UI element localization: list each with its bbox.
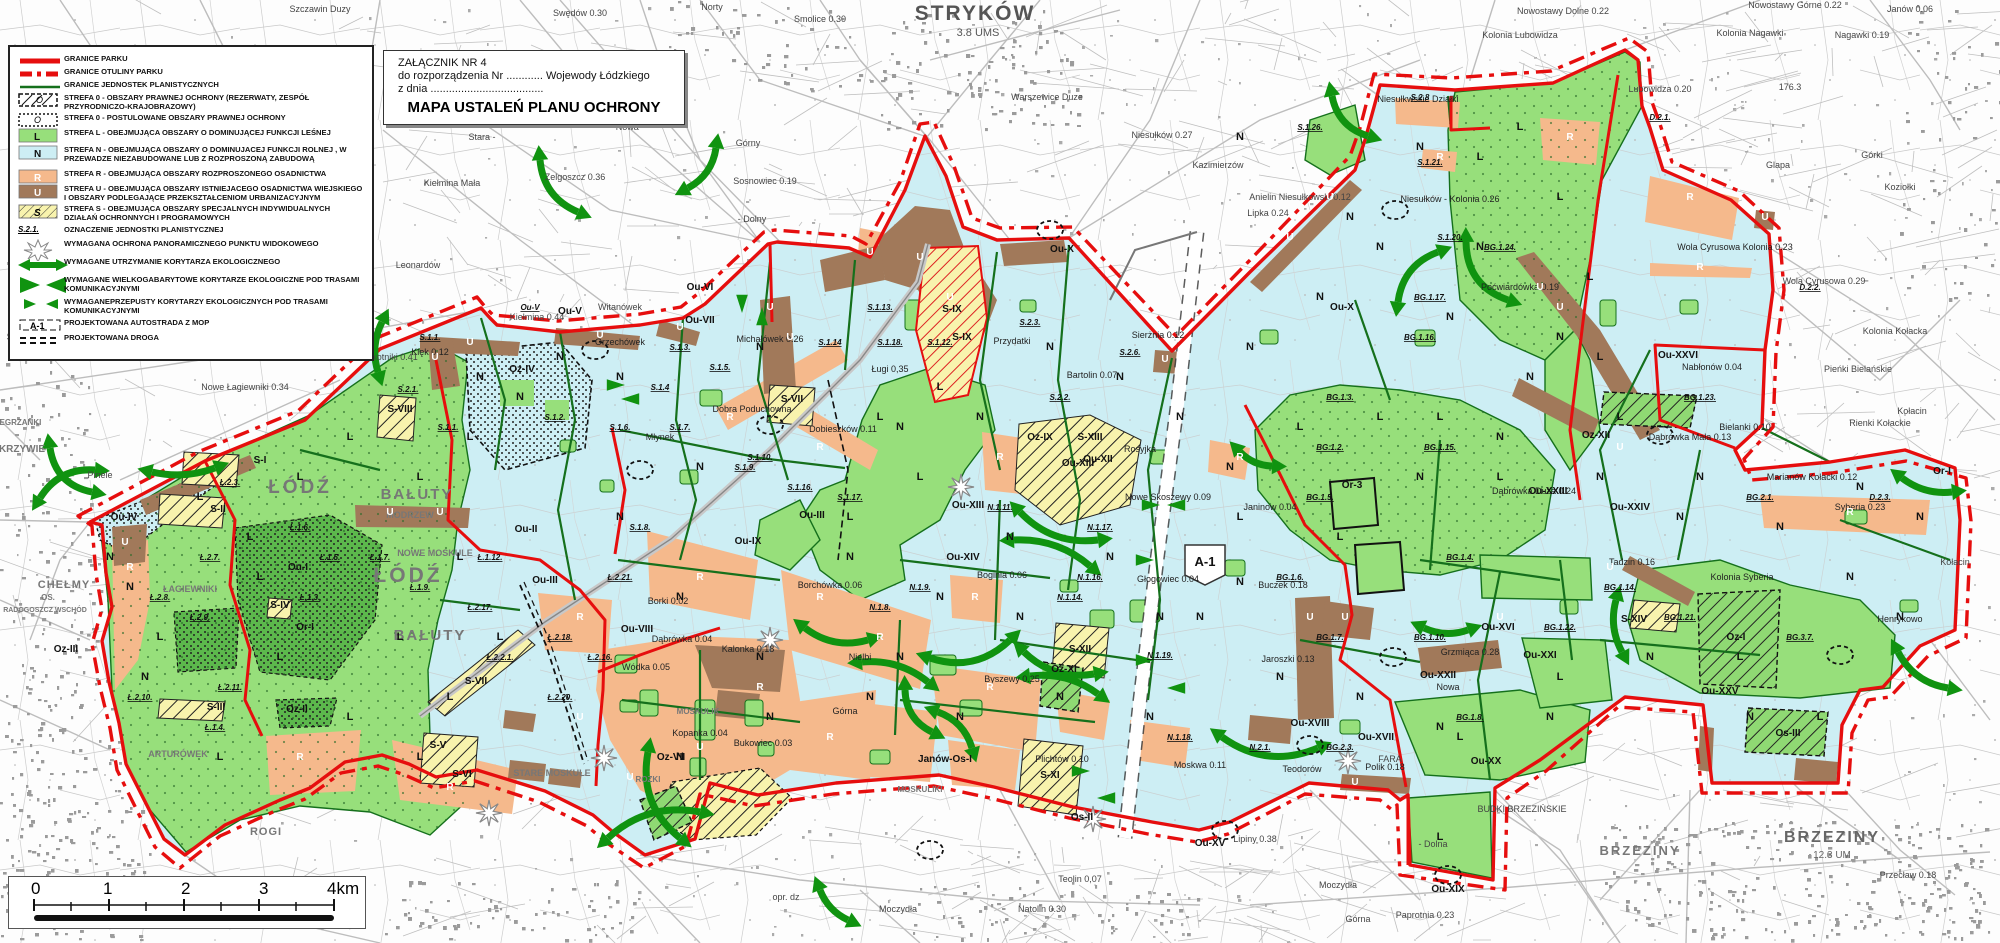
svg-text:- Dolny: - Dolny xyxy=(738,214,767,224)
svg-text:Ou-VIII: Ou-VIII xyxy=(621,624,653,635)
svg-text:N: N xyxy=(1236,131,1244,143)
svg-text:S-V: S-V xyxy=(430,740,447,751)
svg-text:S.1.20.: S.1.20. xyxy=(1437,233,1462,242)
svg-text:Ou-X: Ou-X xyxy=(1330,302,1354,313)
svg-text:BAŁUTY: BAŁUTY xyxy=(381,486,454,503)
svg-text:N.1.8.: N.1.8. xyxy=(869,603,890,612)
svg-text:S.2.6.: S.2.6. xyxy=(1120,348,1141,357)
svg-text:Ou-IV: Ou-IV xyxy=(111,512,138,523)
svg-text:BG.3.7.: BG.3.7. xyxy=(1786,633,1814,642)
svg-text:N: N xyxy=(1226,461,1234,473)
svg-text:Os-III: Os-III xyxy=(1775,728,1800,739)
svg-text:S-VIII: S-VIII xyxy=(387,404,412,415)
svg-text:L: L xyxy=(1477,151,1484,163)
svg-text:U: U xyxy=(34,188,41,199)
svg-text:12.3 UM: 12.3 UM xyxy=(1813,850,1851,861)
svg-text:Nowostawy Dolne 0.22: Nowostawy Dolne 0.22 xyxy=(1517,6,1609,16)
svg-text:Zelgoszcz 0.36: Zelgoszcz 0.36 xyxy=(545,172,606,182)
svg-text:S.2.3.: S.2.3. xyxy=(1020,318,1041,327)
svg-text:Janinow 0.04: Janinow 0.04 xyxy=(1243,502,1296,512)
svg-text:BG.1.3.: BG.1.3. xyxy=(1326,393,1354,402)
svg-text:Kolonia Lubowidza: Kolonia Lubowidza xyxy=(1482,30,1558,40)
svg-text:L: L xyxy=(1297,421,1304,433)
svg-text:N: N xyxy=(1646,651,1654,663)
svg-text:L: L xyxy=(1437,411,1444,423)
svg-text:R: R xyxy=(986,682,994,693)
svg-text:Ou-XV: Ou-XV xyxy=(1195,838,1226,849)
svg-text:N: N xyxy=(1236,576,1244,588)
svg-text:Ł.1.5.: Ł.1.5. xyxy=(319,553,340,562)
svg-text:N: N xyxy=(141,671,149,683)
svg-text:Ou-IX: Ou-IX xyxy=(735,536,762,547)
svg-text:Grzmiąca 0.28: Grzmiąca 0.28 xyxy=(1441,647,1500,657)
svg-text:L: L xyxy=(347,711,354,723)
svg-text:Niesułków 0.27: Niesułków 0.27 xyxy=(1131,130,1192,140)
svg-text:Nabłonów 0.04: Nabłonów 0.04 xyxy=(1682,362,1742,372)
svg-text:S.1.1.: S.1.1. xyxy=(438,423,459,432)
svg-text:Ou-XXVI: Ou-XXVI xyxy=(1658,350,1698,361)
svg-text:Lubowidza 0.20: Lubowidza 0.20 xyxy=(1628,84,1691,94)
svg-text:N: N xyxy=(1746,711,1754,723)
svg-text:S-VII: S-VII xyxy=(465,676,487,687)
svg-text:N: N xyxy=(1046,341,1054,353)
svg-text:ŁÓDŹ: ŁÓDŹ xyxy=(373,563,442,587)
svg-text:U: U xyxy=(1351,777,1358,788)
svg-text:Pieńki Bielańskie: Pieńki Bielańskie xyxy=(1824,364,1892,374)
svg-text:N: N xyxy=(956,711,964,723)
svg-text:Ou-III: Ou-III xyxy=(799,510,825,521)
svg-text:L: L xyxy=(397,631,404,643)
svg-text:R: R xyxy=(756,682,764,693)
svg-text:Natolin 0.30: Natolin 0.30 xyxy=(1018,904,1066,914)
svg-text:N: N xyxy=(766,711,774,723)
svg-text:N: N xyxy=(1056,691,1064,703)
svg-text:Ł.2.21.: Ł.2.21. xyxy=(607,573,633,582)
svg-text:Nowe Skoszewy 0.09: Nowe Skoszewy 0.09 xyxy=(1125,492,1211,502)
svg-text:BAŁUTY: BAŁUTY xyxy=(394,627,467,644)
svg-text:N.1.16.: N.1.16. xyxy=(1077,573,1103,582)
svg-text:U: U xyxy=(946,292,953,303)
svg-text:S-XIV: S-XIV xyxy=(1621,614,1647,625)
svg-text:S-VI: S-VI xyxy=(452,769,472,780)
svg-text:Poćwiardówka 0.19: Poćwiardówka 0.19 xyxy=(1481,282,1559,292)
svg-text:Or-I: Or-I xyxy=(1933,466,1951,477)
svg-text:Bartolin 0.07: Bartolin 0.07 xyxy=(1067,370,1118,380)
svg-text:N: N xyxy=(1196,611,1204,623)
svg-text:U: U xyxy=(1161,354,1168,365)
svg-text:L: L xyxy=(467,431,474,443)
svg-text:Kiełmina Mała: Kiełmina Mała xyxy=(424,178,481,188)
svg-text:N: N xyxy=(1416,141,1424,153)
svg-text:Witanówek: Witanówek xyxy=(598,302,643,312)
svg-text:S.1.6.: S.1.6. xyxy=(610,423,631,432)
svg-text:N: N xyxy=(1246,341,1254,353)
svg-text:Marianów Kołacki 0.12: Marianów Kołacki 0.12 xyxy=(1767,472,1858,482)
svg-text:N: N xyxy=(1356,691,1364,703)
svg-text:Norty: Norty xyxy=(701,2,723,12)
svg-text:Ou-XIII: Ou-XIII xyxy=(1062,458,1094,469)
svg-text:Pinele: Pinele xyxy=(87,470,112,480)
svg-text:U: U xyxy=(916,252,923,263)
svg-text:Bukowiec 0.03: Bukowiec 0.03 xyxy=(734,738,793,748)
svg-text:N: N xyxy=(1916,511,1924,523)
svg-text:U: U xyxy=(436,507,443,518)
svg-text:BG.1.2.: BG.1.2. xyxy=(1316,443,1344,452)
svg-text:KRZYWIE: KRZYWIE xyxy=(0,444,45,455)
svg-text:U: U xyxy=(1761,212,1768,223)
svg-text:ŁAGIEWNIKI: ŁAGIEWNIKI xyxy=(163,584,217,594)
svg-text:L: L xyxy=(447,691,454,703)
svg-text:Nagawki 0.19: Nagawki 0.19 xyxy=(1835,30,1890,40)
svg-text:N: N xyxy=(1346,211,1354,223)
svg-text:L: L xyxy=(1337,531,1344,543)
svg-text:Sosnowiec 0.19: Sosnowiec 0.19 xyxy=(733,176,797,186)
svg-text:N: N xyxy=(1676,511,1684,523)
svg-text:N: N xyxy=(1106,551,1114,563)
svg-text:L: L xyxy=(217,751,224,763)
svg-text:R: R xyxy=(34,173,42,184)
svg-text:U: U xyxy=(1286,232,1293,243)
svg-text:L: L xyxy=(1617,411,1624,423)
svg-text:L: L xyxy=(1517,121,1524,133)
svg-text:N: N xyxy=(896,651,904,663)
svg-text:Ł.2.17.: Ł.2.17. xyxy=(467,603,493,612)
svg-text:R: R xyxy=(1696,262,1704,273)
svg-text:Lipka 0.24: Lipka 0.24 xyxy=(1247,208,1289,218)
svg-text:R: R xyxy=(1686,192,1694,203)
svg-text:L: L xyxy=(497,631,504,643)
svg-text:Nowa: Nowa xyxy=(1436,682,1459,692)
svg-text:Górna: Górna xyxy=(832,706,857,716)
svg-text:Janów 0.06: Janów 0.06 xyxy=(1887,4,1933,14)
svg-text:N: N xyxy=(1526,371,1534,383)
svg-text:S.2.8: S.2.8 xyxy=(1411,93,1430,102)
svg-text:U: U xyxy=(1306,612,1313,623)
svg-text:Syberia 0.23: Syberia 0.23 xyxy=(1835,502,1886,512)
svg-text:Wola Cyrusowa 0.29: Wola Cyrusowa 0.29 xyxy=(1783,276,1866,286)
svg-text:R: R xyxy=(726,412,734,423)
svg-text:U: U xyxy=(121,537,128,548)
svg-text:L: L xyxy=(157,631,164,643)
svg-text:N: N xyxy=(1376,241,1384,253)
svg-text:S.2.1.: S.2.1. xyxy=(398,385,419,394)
svg-text:L: L xyxy=(1557,191,1564,203)
svg-text:L: L xyxy=(197,491,204,503)
svg-text:U: U xyxy=(766,302,773,313)
svg-text:Przydatki: Przydatki xyxy=(993,336,1030,346)
svg-text:N: N xyxy=(556,351,564,363)
svg-text:N: N xyxy=(1446,311,1454,323)
svg-text:S-II: S-II xyxy=(210,504,226,515)
svg-text:N.1.14.: N.1.14. xyxy=(1057,593,1083,602)
svg-text:Os-II: Os-II xyxy=(1071,812,1093,823)
svg-text:Ou-VII: Ou-VII xyxy=(685,315,715,326)
svg-text:Borchówka 0.06: Borchówka 0.06 xyxy=(798,580,863,590)
svg-text:Polik 0.18: Polik 0.18 xyxy=(1365,762,1405,772)
svg-text:N.1.19.: N.1.19. xyxy=(1147,651,1173,660)
svg-text:Górny: Górny xyxy=(736,138,761,148)
svg-text:Kiełmina 0.44: Kiełmina 0.44 xyxy=(510,312,565,322)
svg-text:BG.1.4.: BG.1.4. xyxy=(1446,553,1474,562)
svg-text:N: N xyxy=(106,551,114,563)
svg-text:Warszewice Duze: Warszewice Duze xyxy=(1011,92,1083,102)
svg-text:3.8 UMS: 3.8 UMS xyxy=(957,27,1000,39)
svg-text:S.1.7.: S.1.7. xyxy=(670,423,691,432)
svg-text:Ł.2.18.: Ł.2.18. xyxy=(547,633,573,642)
svg-text:BG.1.6.: BG.1.6. xyxy=(1276,573,1304,582)
svg-text:Ou-XVI: Ou-XVI xyxy=(1481,622,1515,633)
svg-text:L: L xyxy=(257,571,264,583)
svg-text:Szczawin Duzy: Szczawin Duzy xyxy=(289,4,351,14)
svg-text:Smolice 0.30: Smolice 0.30 xyxy=(794,14,846,24)
svg-text:Ou-XXIV: Ou-XXIV xyxy=(1610,502,1650,513)
svg-text:S-IX: S-IX xyxy=(942,304,962,315)
svg-text:Ou-XVIII: Ou-XVIII xyxy=(1291,718,1330,729)
svg-text:MOSKULIKI: MOSKULIKI xyxy=(898,785,943,794)
svg-text:N: N xyxy=(1596,471,1604,483)
svg-text:U: U xyxy=(786,332,793,343)
svg-text:R: R xyxy=(1236,452,1244,463)
svg-text:N: N xyxy=(516,391,524,403)
svg-text:BG.1.7.: BG.1.7. xyxy=(1316,633,1344,642)
svg-text:N.1.11.: N.1.11. xyxy=(987,503,1012,512)
svg-text:L: L xyxy=(1597,351,1604,363)
svg-text:ROGI: ROGI xyxy=(250,826,282,838)
svg-text:Ou-V: Ou-V xyxy=(558,306,582,317)
svg-text:Sierżnia 0.12: Sierżnia 0.12 xyxy=(1132,330,1185,340)
svg-text:Wola Cyrusowa Kolonia 0.23: Wola Cyrusowa Kolonia 0.23 xyxy=(1677,242,1792,252)
svg-text:L: L xyxy=(277,651,284,663)
svg-text:Oz-III: Oz-III xyxy=(54,644,79,655)
svg-text:Dobieszków 0.11: Dobieszków 0.11 xyxy=(809,424,877,434)
svg-text:BG.1.17.: BG.1.17. xyxy=(1414,293,1446,302)
svg-text:L: L xyxy=(297,471,304,483)
svg-text:Niesułków - Kolonia 0.26: Niesułków - Kolonia 0.26 xyxy=(1400,194,1499,204)
svg-text:S.1.3.: S.1.3. xyxy=(670,343,691,352)
svg-text:Ł.2.20.: Ł.2.20. xyxy=(547,693,573,702)
svg-text:Ł.2.7.: Ł.2.7. xyxy=(199,553,220,562)
svg-text:R: R xyxy=(996,452,1004,463)
svg-text:U: U xyxy=(676,322,683,333)
svg-text:BG.1.15.: BG.1.15. xyxy=(1424,443,1456,452)
svg-text:L: L xyxy=(247,531,254,543)
svg-text:U: U xyxy=(1496,612,1503,623)
svg-text:U: U xyxy=(431,352,438,363)
svg-text:Ługi 0,35: Ługi 0,35 xyxy=(871,364,908,374)
svg-text:S-XI: S-XI xyxy=(1040,770,1060,781)
svg-text:Or-I: Or-I xyxy=(296,622,314,633)
svg-text:Kazimierzów: Kazimierzów xyxy=(1192,160,1244,170)
svg-text:MOSKULIK: MOSKULIK xyxy=(677,707,720,716)
svg-text:R: R xyxy=(296,752,304,763)
svg-text:Teolin 0,07: Teolin 0,07 xyxy=(1058,874,1102,884)
svg-text:N: N xyxy=(1846,571,1854,583)
svg-text:L: L xyxy=(1557,671,1564,683)
svg-text:D.2.2.: D.2.2. xyxy=(1799,283,1820,292)
svg-text:Ł.1.4.: Ł.1.4. xyxy=(204,723,225,732)
svg-text:N: N xyxy=(1006,531,1014,543)
svg-text:N: N xyxy=(1146,711,1154,723)
svg-text:L: L xyxy=(1237,511,1244,523)
svg-text:N: N xyxy=(1696,471,1704,483)
svg-text:Przecław 0.18: Przecław 0.18 xyxy=(1880,870,1937,880)
svg-text:L: L xyxy=(1437,831,1444,843)
svg-text:L: L xyxy=(1817,711,1824,723)
svg-text:U: U xyxy=(596,330,603,341)
svg-text:BUDKI BRZEZIŃSKIE: BUDKI BRZEZIŃSKIE xyxy=(1477,804,1566,814)
svg-text:Ou-V: Ou-V xyxy=(520,303,540,312)
svg-text:Moczydła: Moczydła xyxy=(879,904,917,914)
svg-text:STARE MOSKULE: STARE MOSKULE xyxy=(513,768,590,778)
svg-text:BG.2.3.: BG.2.3. xyxy=(1326,743,1354,752)
svg-text:Paprotnia 0.23: Paprotnia 0.23 xyxy=(1396,910,1455,920)
svg-text:S-III: S-III xyxy=(207,702,226,713)
svg-text:BG.1.16.: BG.1.16. xyxy=(1404,333,1436,342)
svg-text:N: N xyxy=(1416,471,1424,483)
svg-text:Ou-I: Ou-I xyxy=(288,562,308,573)
svg-text:R: R xyxy=(971,592,979,603)
svg-text:S.1.10.: S.1.10. xyxy=(747,453,772,462)
svg-text:Rienki Kołackie: Rienki Kołackie xyxy=(1849,418,1911,428)
svg-text:Ł.2.3.: Ł.2.3. xyxy=(219,478,240,487)
svg-text:U: U xyxy=(866,247,873,258)
svg-text:BG.1.24.: BG.1.24. xyxy=(1484,243,1516,252)
svg-text:U: U xyxy=(1326,192,1333,203)
svg-text:Kolonia Kołacka: Kolonia Kołacka xyxy=(1863,326,1928,336)
svg-text:Ł.2.16.: Ł.2.16. xyxy=(587,653,613,662)
svg-text:Ou-XXV: Ou-XXV xyxy=(1701,686,1739,697)
svg-text:S.1.14: S.1.14 xyxy=(818,338,842,347)
svg-text:R: R xyxy=(576,612,584,623)
svg-text:N: N xyxy=(1276,671,1284,683)
svg-text:R: R xyxy=(696,572,704,583)
svg-text:L: L xyxy=(847,511,854,523)
svg-text:Górna: Górna xyxy=(1345,914,1370,924)
svg-text:Ł.2.11.: Ł.2.11. xyxy=(217,683,242,692)
svg-text:R: R xyxy=(816,442,824,453)
svg-text:R: R xyxy=(126,562,134,573)
svg-text:Wódka 0.05: Wódka 0.05 xyxy=(622,662,670,672)
svg-text:S.1.2.: S.1.2. xyxy=(545,413,566,422)
svg-text:Oz-XII: Oz-XII xyxy=(1582,430,1611,441)
svg-text:Ou-XVII: Ou-XVII xyxy=(1358,732,1394,743)
svg-text:Teodorów: Teodorów xyxy=(1282,764,1322,774)
svg-text:S.1.8.: S.1.8. xyxy=(630,523,651,532)
svg-text:N: N xyxy=(1316,291,1324,303)
svg-text:R: R xyxy=(816,592,824,603)
svg-text:Ou-VI: Ou-VI xyxy=(687,282,714,293)
svg-text:BRZEZINY: BRZEZINY xyxy=(1784,829,1880,846)
svg-text:N: N xyxy=(1116,371,1124,383)
svg-text:Ł.2.10.: Ł.2.10. xyxy=(127,693,153,702)
svg-text:BG.1.5.: BG.1.5. xyxy=(1306,493,1334,502)
svg-text:N: N xyxy=(696,461,704,473)
svg-text:Dąbrówka Mała 0.13: Dąbrówka Mała 0.13 xyxy=(1649,432,1732,442)
svg-text:R: R xyxy=(1846,507,1854,518)
svg-text:N: N xyxy=(676,751,684,763)
svg-text:Nowe Łagiewniki 0.34: Nowe Łagiewniki 0.34 xyxy=(201,382,289,392)
svg-text:Ł.2.8.: Ł.2.8. xyxy=(149,593,170,602)
svg-text:BG.1.14.: BG.1.14. xyxy=(1604,583,1636,592)
svg-text:R: R xyxy=(1566,132,1574,143)
svg-text:Swędów 0.30: Swędów 0.30 xyxy=(553,8,607,18)
svg-text:Głogowiec 0.04: Głogowiec 0.04 xyxy=(1137,574,1199,584)
svg-text:S.1.17.: S.1.17. xyxy=(837,493,862,502)
svg-text:opr. dz: opr. dz xyxy=(772,892,800,902)
svg-text:Glapa: Glapa xyxy=(1766,160,1790,170)
svg-text:N: N xyxy=(676,591,684,603)
svg-text:Ł.2.9.: Ł.2.9. xyxy=(189,613,210,622)
svg-text:N: N xyxy=(1856,481,1864,493)
svg-text:L: L xyxy=(917,471,924,483)
svg-text:U: U xyxy=(1616,442,1623,453)
svg-text:U: U xyxy=(1341,612,1348,623)
svg-text:S.1.4: S.1.4 xyxy=(651,383,670,392)
svg-text:Oz-II: Oz-II xyxy=(286,704,308,715)
svg-text:S-XIII: S-XIII xyxy=(1077,432,1102,443)
svg-text:S.1.13.: S.1.13. xyxy=(867,303,892,312)
svg-text:A-1: A-1 xyxy=(1195,554,1216,569)
svg-text:Jaroszki 0.13: Jaroszki 0.13 xyxy=(1261,654,1314,664)
svg-text:BG.1.10.: BG.1.10. xyxy=(1414,633,1446,642)
svg-text:U: U xyxy=(386,507,393,518)
svg-text:O: O xyxy=(36,95,43,105)
svg-text:S-VII: S-VII xyxy=(781,394,803,405)
svg-text:S.1.21.: S.1.21. xyxy=(1417,158,1442,167)
svg-text:Moskwa 0.11: Moskwa 0.11 xyxy=(1174,760,1226,770)
svg-text:Ou-XXI: Ou-XXI xyxy=(1523,650,1557,661)
svg-text:N: N xyxy=(126,581,134,593)
svg-text:Ou-XIII: Ou-XIII xyxy=(952,500,984,511)
svg-text:Ł.1.6.: Ł.1.6. xyxy=(289,523,310,532)
svg-text:L: L xyxy=(1457,731,1464,743)
svg-text:N: N xyxy=(756,341,764,353)
svg-text:L: L xyxy=(417,751,424,763)
svg-text:S.1.26.: S.1.26. xyxy=(1297,123,1322,132)
svg-text:Kolonia Syberia: Kolonia Syberia xyxy=(1710,572,1773,582)
svg-text:Stara -: Stara - xyxy=(468,132,495,142)
svg-text:BG.1.21.: BG.1.21. xyxy=(1664,613,1696,622)
svg-text:O: O xyxy=(34,115,41,125)
svg-text:Nielbi: Nielbi xyxy=(849,652,872,662)
svg-text:S.1.1.: S.1.1. xyxy=(420,333,441,342)
svg-text:N.1.9.: N.1.9. xyxy=(909,583,930,592)
svg-text:U: U xyxy=(466,337,473,348)
svg-text:U: U xyxy=(576,712,583,723)
svg-text:Oz-XI: Oz-XI xyxy=(1051,664,1077,675)
svg-text:BG.2.1.: BG.2.1. xyxy=(1746,493,1774,502)
svg-text:A-1: A-1 xyxy=(30,321,45,331)
svg-text:N: N xyxy=(1496,431,1504,443)
svg-text:Młynek: Młynek xyxy=(646,432,675,442)
svg-text:Kołacin: Kołacin xyxy=(1897,406,1927,416)
svg-text:D.2.3.: D.2.3. xyxy=(1869,493,1890,502)
svg-text:Tadzin 0.16: Tadzin 0.16 xyxy=(1609,557,1655,567)
svg-text:U: U xyxy=(1536,282,1543,293)
svg-text:Oz-IV: Oz-IV xyxy=(509,364,535,375)
svg-text:CHEŁMY: CHEŁMY xyxy=(38,579,90,591)
svg-text:Dąbrówka 0.04: Dąbrówka 0.04 xyxy=(652,634,713,644)
svg-text:176.3: 176.3 xyxy=(1779,82,1802,92)
svg-text:Kopanka 0.04: Kopanka 0.04 xyxy=(672,728,728,738)
svg-text:Ou-XXIII: Ou-XXIII xyxy=(1529,486,1568,497)
svg-text:Moczydła: Moczydła xyxy=(1319,880,1357,890)
svg-text:Ł.1.9.: Ł.1.9. xyxy=(409,583,430,592)
svg-text:U: U xyxy=(1556,302,1563,313)
svg-text:L: L xyxy=(1377,411,1384,423)
svg-text:ZEGRZANKI: ZEGRZANKI xyxy=(0,418,41,427)
svg-text:Koziołki: Koziołki xyxy=(1884,182,1915,192)
